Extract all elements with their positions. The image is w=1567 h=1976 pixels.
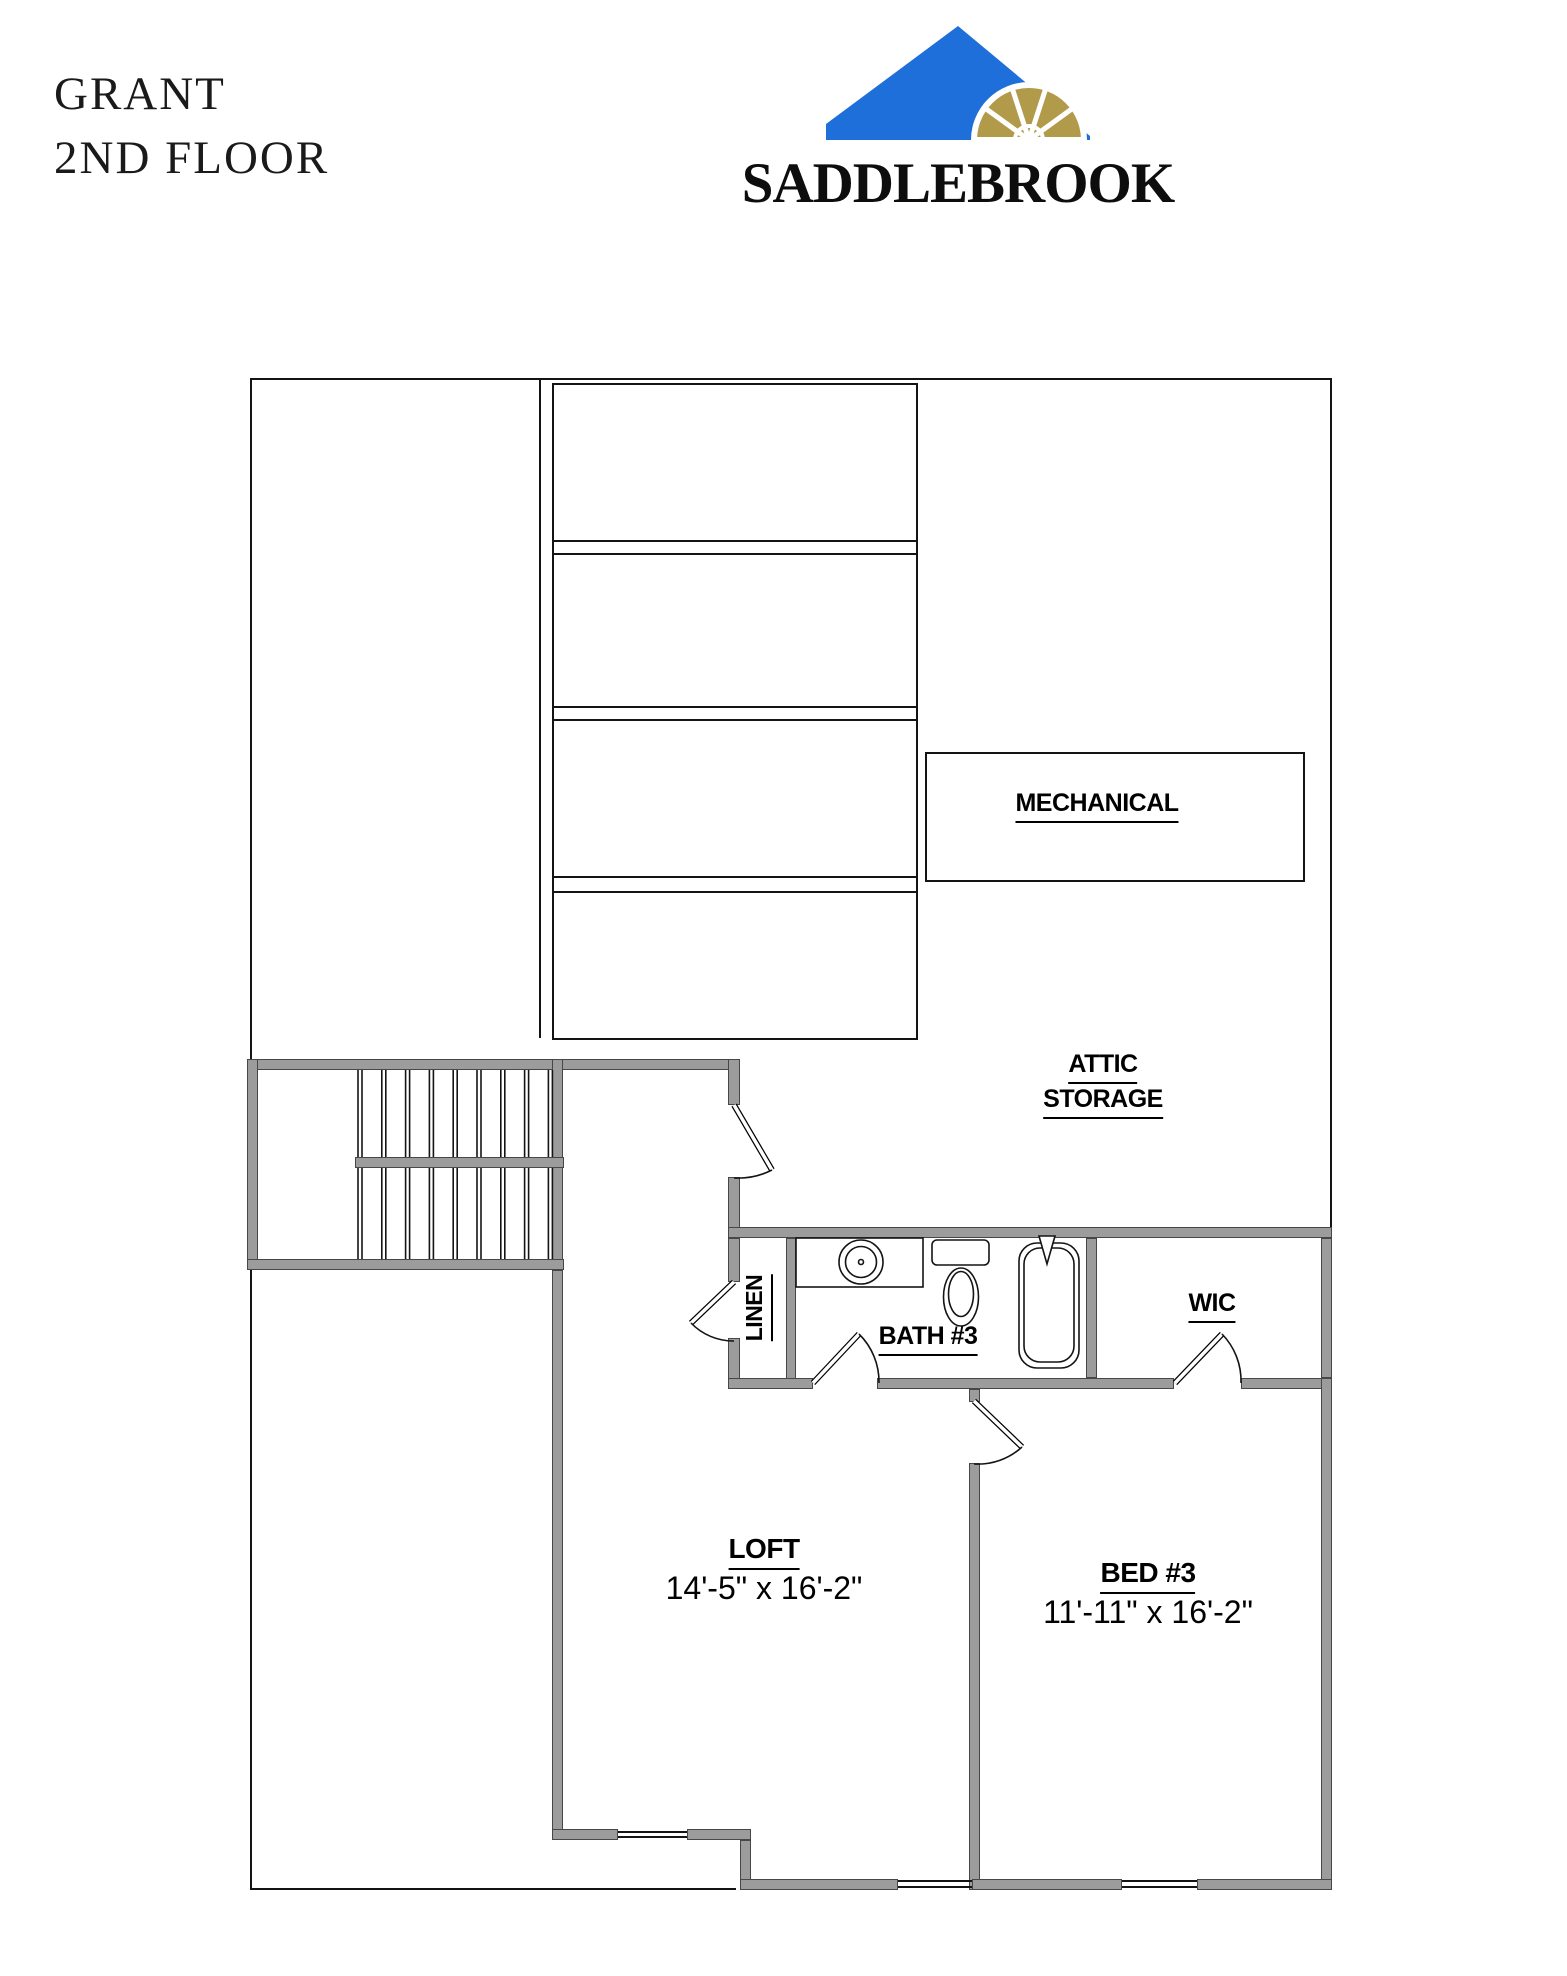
toilet-icon [932, 1240, 989, 1326]
wic-door-icon [1175, 1334, 1241, 1383]
loft-dimensions: 14'-5" x 16'-2" [666, 1570, 863, 1607]
attic-door-icon [734, 1105, 772, 1178]
wic-label: WIC [1188, 1289, 1235, 1323]
bed3-dimensions: 11'-11" x 16'-2" [1043, 1594, 1253, 1631]
bath-label: BATH #3 [879, 1322, 978, 1356]
mechanical-label: MECHANICAL [1015, 789, 1178, 823]
linen-door-icon [691, 1282, 734, 1341]
bed3-door-icon [974, 1401, 1022, 1464]
floorplan-page: GRANT 2ND FLOOR SADDLEBROOK [0, 0, 1567, 1976]
bath-door-icon [813, 1334, 879, 1383]
loft-label-block: LOFT 14'-5" x 16'-2" [666, 1533, 863, 1607]
attic-storage-label: ATTIC STORAGE [1043, 1049, 1163, 1119]
plan-drawing-overlay [0, 0, 1567, 1976]
bed3-label-block: BED #3 11'-11" x 16'-2" [1043, 1557, 1253, 1631]
stair-treads-icon [358, 1070, 552, 1259]
linen-label: LINEN [741, 1275, 773, 1342]
bathtub-icon [1019, 1236, 1079, 1368]
vanity-sink-icon [796, 1238, 923, 1287]
